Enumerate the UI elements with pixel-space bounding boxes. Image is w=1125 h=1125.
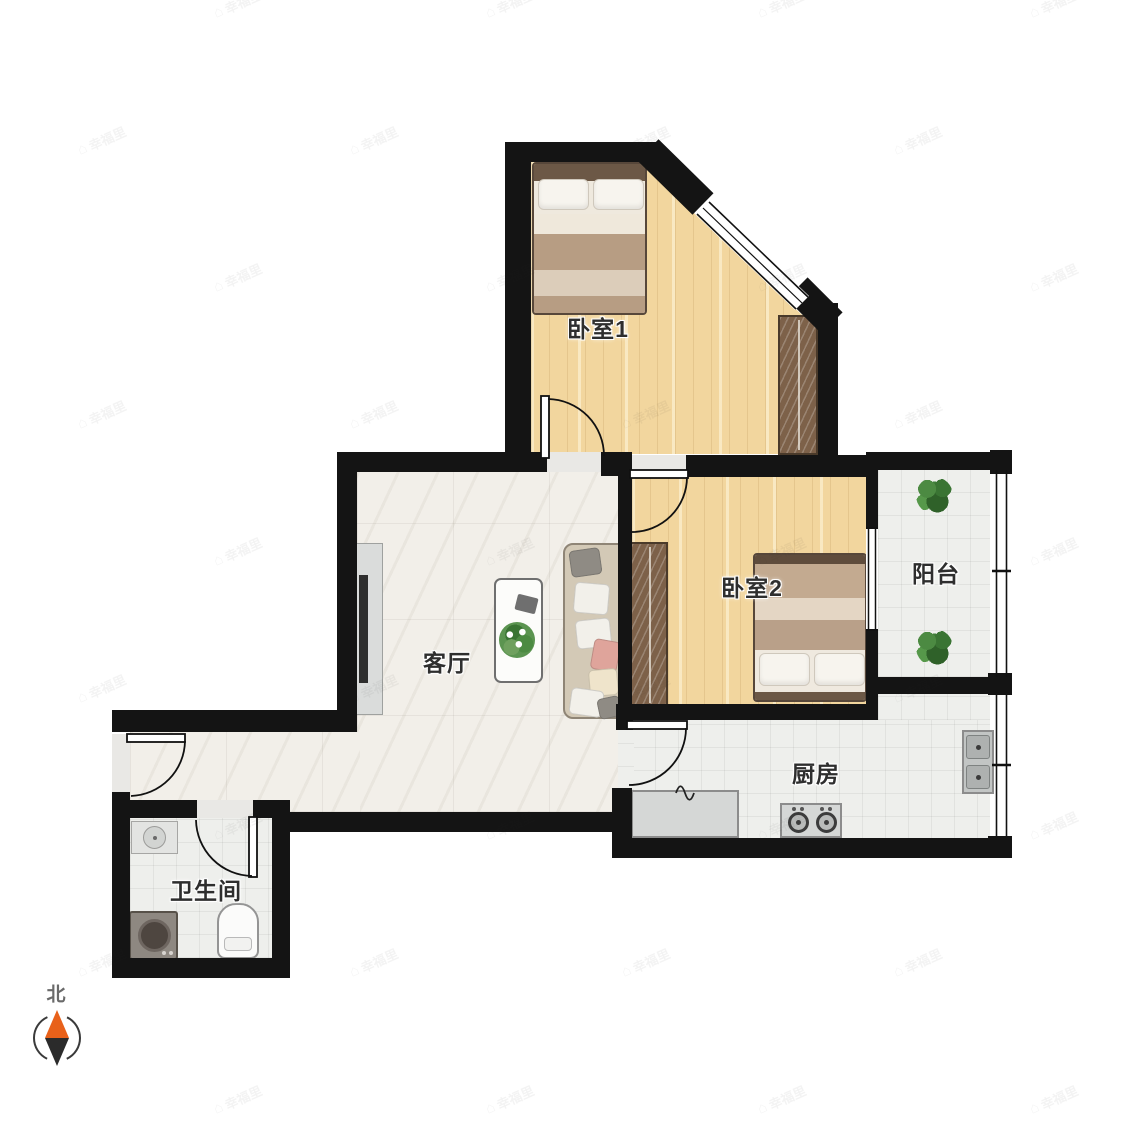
watermark: ⌂幸福里 <box>74 121 128 159</box>
plant-icon <box>916 629 953 666</box>
bedroom1-bed <box>532 162 647 315</box>
watermark: ⌂幸福里 <box>1026 532 1080 570</box>
house-icon: ⌂ <box>211 1099 225 1116</box>
window-icon <box>992 470 1011 677</box>
wall <box>112 800 197 818</box>
watermark: ⌂幸福里 <box>210 532 264 570</box>
wall <box>686 455 878 477</box>
house-icon: ⌂ <box>75 688 89 705</box>
kitchen-sink <box>962 730 994 794</box>
watermark: ⌂幸福里 <box>74 669 128 707</box>
washing-machine <box>129 911 178 960</box>
wall <box>818 303 838 472</box>
wall <box>616 704 633 730</box>
bedroom2-wardrobe <box>630 542 668 708</box>
house-icon: ⌂ <box>1027 277 1041 294</box>
watermark: ⌂幸福里 <box>346 943 400 981</box>
wall <box>990 450 1012 474</box>
room-label-kitchen: 厨房 <box>792 755 840 789</box>
kitchen-floor-right <box>878 694 990 720</box>
watermark: ⌂幸福里 <box>618 943 672 981</box>
watermark: ⌂幸福里 <box>1026 1080 1080 1118</box>
wall <box>272 812 290 978</box>
house-icon: ⌂ <box>211 277 225 294</box>
house-icon: ⌂ <box>755 1099 769 1116</box>
room-label-balcony: 阳台 <box>912 555 960 589</box>
wall <box>337 452 357 732</box>
house-icon: ⌂ <box>483 277 497 294</box>
sofa <box>563 543 622 719</box>
plant-icon <box>916 477 953 514</box>
compass-north-label: 北 <box>46 980 65 1007</box>
wall <box>618 452 632 714</box>
watermark: ⌂幸福里 <box>890 943 944 981</box>
house-icon: ⌂ <box>347 962 361 979</box>
floor-plan: 卧室1 卧室2 客厅 阳台 厨房 卫生间 北 ⌂幸福里⌂幸福里⌂幸福里⌂幸福里⌂… <box>0 0 1125 1125</box>
wall <box>337 452 547 472</box>
bathroom-sink <box>131 821 178 854</box>
wall <box>988 673 1012 695</box>
room-label-bedroom1: 卧室1 <box>567 310 629 344</box>
house-icon: ⌂ <box>755 3 769 20</box>
room-label-bathroom: 卫生间 <box>170 872 242 906</box>
doorway <box>632 455 686 477</box>
tv-icon <box>359 575 368 683</box>
watermark: ⌂幸福里 <box>482 0 536 23</box>
house-icon: ⌂ <box>347 414 361 431</box>
house-icon: ⌂ <box>1027 1099 1041 1116</box>
watermark: ⌂幸福里 <box>890 395 944 433</box>
watermark: ⌂幸福里 <box>210 0 264 23</box>
wall <box>112 800 130 978</box>
house-icon: ⌂ <box>483 1099 497 1116</box>
watermark: ⌂幸福里 <box>210 1080 264 1118</box>
house-icon: ⌂ <box>891 962 905 979</box>
wall <box>866 452 878 528</box>
house-icon: ⌂ <box>891 140 905 157</box>
compass-icon <box>34 1010 80 1066</box>
window <box>866 528 878 630</box>
house-icon: ⌂ <box>75 140 89 157</box>
wall <box>112 710 357 732</box>
window-icon <box>992 695 1011 836</box>
doorway <box>547 452 601 472</box>
room-label-bedroom2: 卧室2 <box>721 569 783 603</box>
house-icon: ⌂ <box>1027 3 1041 20</box>
watermark: ⌂幸福里 <box>1026 258 1080 296</box>
watermark: ⌂幸福里 <box>210 258 264 296</box>
kitchen-counter <box>631 790 739 838</box>
bedroom1-wardrobe <box>778 315 818 455</box>
wall <box>505 142 531 472</box>
wall <box>988 836 1012 858</box>
house-icon: ⌂ <box>211 551 225 568</box>
flower-bouquet-icon <box>499 622 535 658</box>
watermark: ⌂幸福里 <box>754 1080 808 1118</box>
watermark: ⌂幸福里 <box>754 0 808 23</box>
watermark: ⌂幸福里 <box>1026 0 1080 23</box>
house-icon: ⌂ <box>347 140 361 157</box>
house-icon: ⌂ <box>1027 825 1041 842</box>
watermark: ⌂幸福里 <box>346 395 400 433</box>
toilet <box>217 903 259 959</box>
watermark: ⌂幸福里 <box>890 121 944 159</box>
watermark: ⌂幸福里 <box>482 1080 536 1118</box>
room-label-living-room: 客厅 <box>423 644 471 678</box>
watermark: ⌂幸福里 <box>346 121 400 159</box>
house-icon: ⌂ <box>211 3 225 20</box>
house-icon: ⌂ <box>1027 551 1041 568</box>
house-icon: ⌂ <box>619 962 633 979</box>
house-icon: ⌂ <box>483 3 497 20</box>
house-icon: ⌂ <box>891 414 905 431</box>
wall <box>275 812 630 832</box>
stove <box>780 803 842 838</box>
doorway <box>197 800 253 818</box>
wall <box>618 704 868 720</box>
wall <box>612 838 1012 858</box>
wall <box>112 958 290 978</box>
doorway <box>112 734 130 792</box>
house-icon: ⌂ <box>75 414 89 431</box>
house-icon: ⌂ <box>75 962 89 979</box>
watermark: ⌂幸福里 <box>74 395 128 433</box>
watermark: ⌂幸福里 <box>1026 806 1080 844</box>
